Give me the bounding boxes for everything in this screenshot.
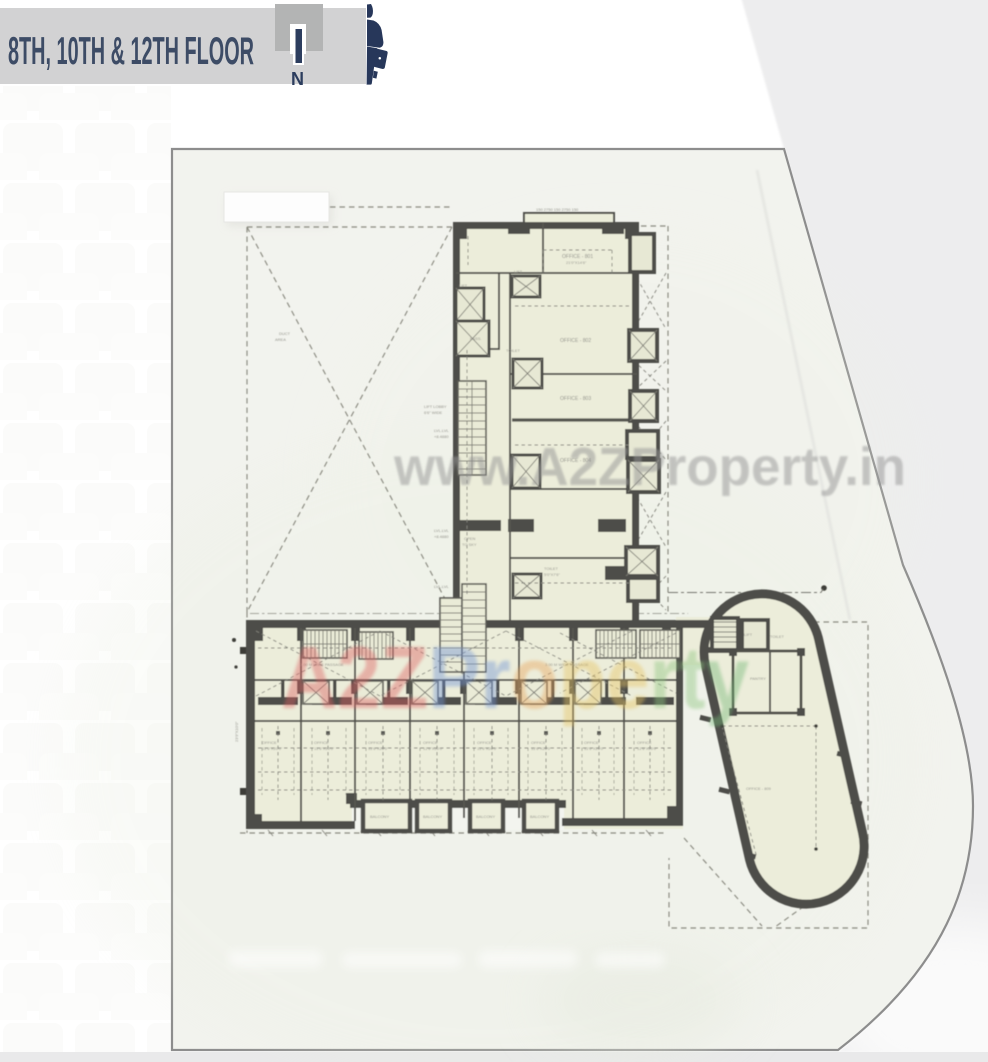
svg-text:OFFICE: OFFICE (531, 740, 546, 745)
svg-text:N: N (291, 69, 304, 89)
svg-text:LIFT LOBBY: LIFT LOBBY (424, 404, 447, 409)
svg-text:LIFT: LIFT (514, 269, 523, 274)
svg-text:BALCONY: BALCONY (476, 814, 495, 819)
svg-text:12'6"X20'0": 12'6"X20'0" (314, 746, 335, 751)
svg-text:6'6" WIDE: 6'6" WIDE (424, 410, 443, 415)
svg-text:8TH, 10TH & 12TH FLOOR: 8TH, 10TH & 12TH FLOOR (8, 30, 254, 73)
svg-text:12'6"X20'0": 12'6"X20'0" (423, 746, 444, 751)
svg-text:23'9"X10'0": 23'9"X10'0" (234, 721, 239, 742)
svg-text:LIFT: LIFT (459, 283, 468, 288)
svg-text:OFFICE - 803: OFFICE - 803 (560, 396, 591, 402)
svg-text:150 2750 150 2750 150: 150 2750 150 2750 150 (536, 207, 579, 212)
svg-text:OPEN: OPEN (464, 536, 475, 541)
svg-text:LVL.LVL: LVL.LVL (434, 428, 450, 433)
svg-text:12'6"X20'0": 12'6"X20'0" (368, 746, 389, 751)
svg-text:PANTRY: PANTRY (750, 676, 766, 681)
svg-text:TOILET: TOILET (770, 634, 784, 639)
svg-text:OFFICE: OFFICE (584, 740, 599, 745)
svg-text:21'0"X14'6": 21'0"X14'6" (566, 260, 587, 265)
svg-text:12'6"X20'0": 12'6"X20'0" (637, 746, 658, 751)
svg-text:OFFICE: OFFICE (423, 740, 438, 745)
svg-text:5'0"X7'6": 5'0"X7'6" (544, 572, 561, 577)
svg-text:OFFICE - 809: OFFICE - 809 (746, 786, 772, 791)
svg-text:BALCONY: BALCONY (370, 814, 389, 819)
svg-text:OFFICE: OFFICE (477, 740, 492, 745)
svg-text:TOILET: TOILET (506, 348, 520, 353)
svg-text:A2ZProperty: A2ZProperty (281, 628, 749, 727)
svg-text:LVL.LVL: LVL.LVL (434, 528, 450, 533)
svg-text:BALCONY: BALCONY (530, 814, 549, 819)
svg-text:BALCONY: BALCONY (423, 814, 442, 819)
svg-text:12'6"X20'0": 12'6"X20'0" (477, 746, 498, 751)
svg-text:OFFICE: OFFICE (262, 740, 277, 745)
svg-text:12'6"X20'0": 12'6"X20'0" (584, 746, 605, 751)
svg-text:OFFICE - 802: OFFICE - 802 (560, 338, 591, 344)
svg-text:OFFICE: OFFICE (314, 740, 329, 745)
svg-text:www.A2ZProperty.in: www.A2ZProperty.in (393, 437, 906, 497)
svg-text:AREA: AREA (275, 337, 286, 342)
svg-text:OFFICE: OFFICE (368, 740, 383, 745)
svg-text:LVL.LVL: LVL.LVL (434, 584, 450, 589)
svg-text:DUCT: DUCT (279, 331, 291, 336)
svg-text:12'6"X20'0": 12'6"X20'0" (531, 746, 552, 751)
svg-text:+8.4880: +8.4880 (434, 534, 449, 539)
svg-text:12'6"X20'0": 12'6"X20'0" (262, 746, 283, 751)
svg-text:OFFICE: OFFICE (637, 740, 652, 745)
svg-text:TOILET: TOILET (544, 566, 558, 571)
svg-text:PASS.: PASS. (470, 336, 482, 341)
svg-text:TO SKY: TO SKY (462, 542, 477, 547)
